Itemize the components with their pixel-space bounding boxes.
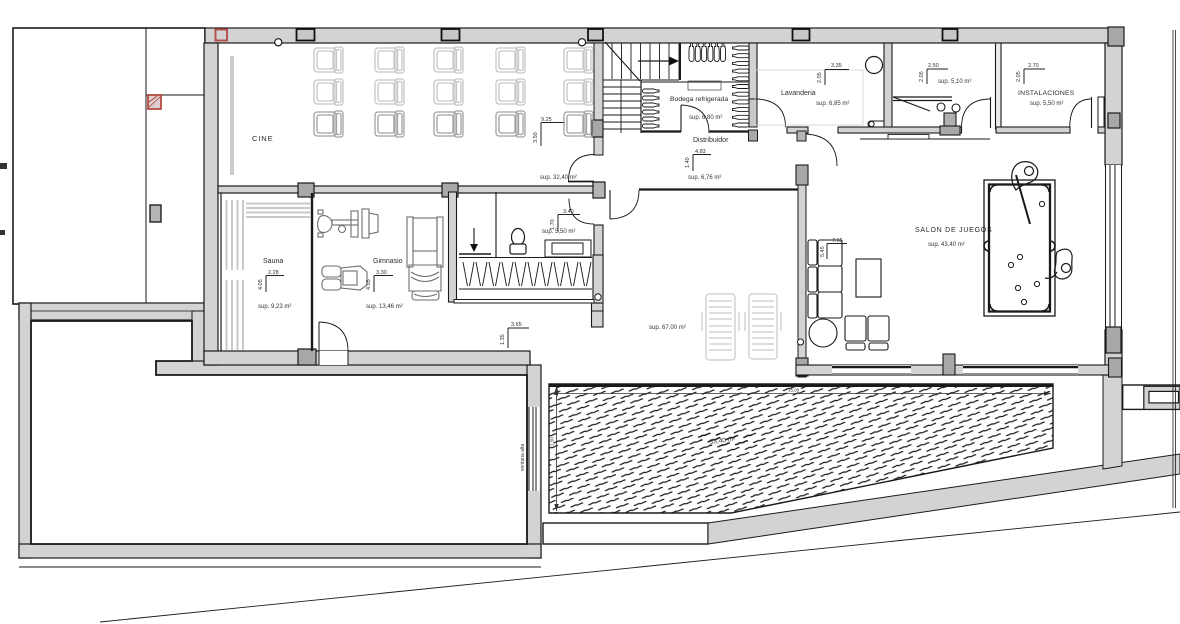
svg-text:Lavanderia: Lavanderia — [781, 90, 816, 97]
svg-text:sup. 32,40 m²: sup. 32,40 m² — [540, 175, 577, 181]
svg-text:1.40: 1.40 — [685, 157, 691, 168]
svg-text:sup. 43,40 m²: sup. 43,40 m² — [928, 242, 965, 248]
svg-text:15,00: 15,00 — [788, 388, 800, 393]
svg-text:sup. 6,80 m²: sup. 6,80 m² — [689, 115, 722, 121]
svg-text:3.50: 3.50 — [533, 132, 539, 143]
svg-text:sup. 5,50 m²: sup. 5,50 m² — [1030, 101, 1063, 107]
svg-text:sup. 67,00 m²: sup. 67,00 m² — [649, 325, 686, 331]
svg-text:2.70: 2.70 — [1028, 63, 1039, 69]
svg-text:CINE: CINE — [252, 134, 274, 143]
svg-text:sup. 13,46 m²: sup. 13,46 m² — [366, 304, 403, 310]
svg-text:SALON DE JUEGOS: SALON DE JUEGOS — [915, 227, 992, 234]
svg-text:sup. 9,23 m²: sup. 9,23 m² — [258, 304, 291, 310]
svg-text:Distribuidor: Distribuidor — [693, 137, 729, 144]
svg-text:3.35: 3.35 — [831, 63, 842, 69]
svg-text:2,50: 2,50 — [550, 437, 555, 446]
svg-text:sup. 5,50 m²: sup. 5,50 m² — [542, 229, 575, 235]
svg-text:5.45: 5.45 — [820, 246, 826, 257]
svg-text:1.35: 1.35 — [500, 334, 506, 345]
svg-text:Gimnasio: Gimnasio — [373, 258, 403, 265]
svg-text:Sauna: Sauna — [263, 258, 283, 265]
svg-text:sup. 5,10 m²: sup. 5,10 m² — [938, 79, 971, 85]
svg-text:ventana alta: ventana alta — [520, 444, 526, 471]
svg-text:2.05: 2.05 — [919, 71, 925, 82]
svg-text:3.65: 3.65 — [511, 322, 522, 328]
svg-text:2.05: 2.05 — [817, 72, 823, 83]
svg-text:2.50: 2.50 — [928, 63, 939, 69]
svg-text:4.05: 4.05 — [258, 279, 264, 290]
svg-text:2.05: 2.05 — [1016, 71, 1022, 82]
svg-text:sup. 6,85 m²: sup. 6,85 m² — [816, 101, 849, 107]
svg-text:sup. 6,76 m²: sup. 6,76 m² — [688, 175, 721, 181]
svg-text:Bodega refrigerada: Bodega refrigerada — [670, 96, 728, 103]
svg-text:INSTALACIONES: INSTALACIONES — [1018, 90, 1075, 97]
